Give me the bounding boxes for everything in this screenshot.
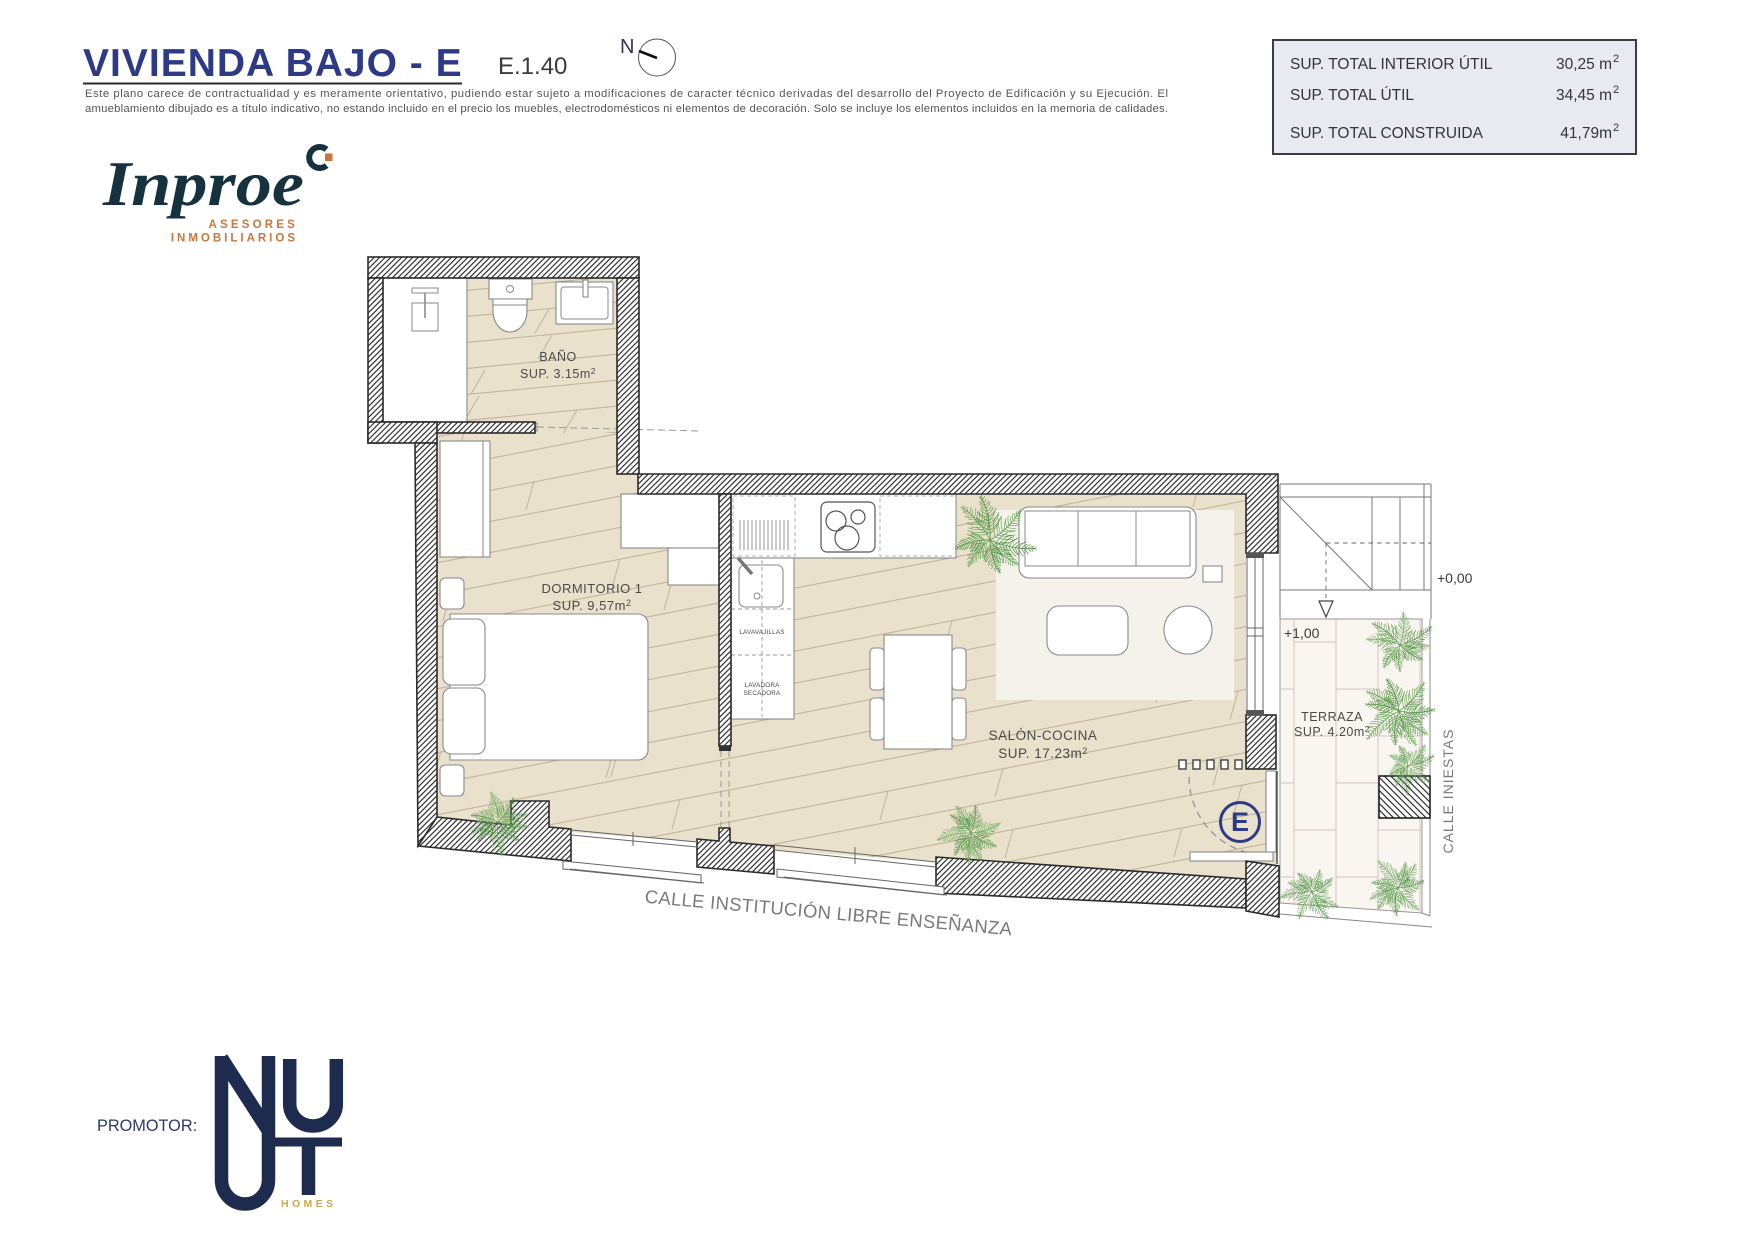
svg-text:+1,00: +1,00 [1284, 625, 1320, 641]
svg-text:30,25 m: 30,25 m [1556, 56, 1612, 73]
svg-text:SALÓN-COCINA: SALÓN-COCINA [989, 728, 1098, 743]
svg-text:SECADORA: SECADORA [744, 690, 782, 697]
svg-text:2: 2 [1613, 53, 1619, 65]
svg-text:SUP. TOTAL CONSTRUIDA: SUP. TOTAL CONSTRUIDA [1290, 125, 1484, 142]
svg-text:INMOBILIARIOS: INMOBILIARIOS [171, 233, 298, 245]
svg-text:2: 2 [1613, 122, 1619, 134]
svg-text:DORMITORIO 1: DORMITORIO 1 [541, 581, 642, 596]
svg-text:E: E [1231, 807, 1249, 837]
svg-text:SUP. 4.20m2: SUP. 4.20m2 [1294, 724, 1370, 739]
svg-text:TERRAZA: TERRAZA [1301, 710, 1363, 724]
svg-text:+0,00: +0,00 [1437, 570, 1473, 586]
svg-text:SUP. TOTAL ÚTIL: SUP. TOTAL ÚTIL [1290, 87, 1414, 104]
svg-text:CALLE INIESTAS: CALLE INIESTAS [1440, 728, 1456, 853]
svg-text:E.1.40: E.1.40 [498, 53, 567, 80]
svg-text:BAÑO: BAÑO [539, 350, 576, 364]
svg-text:HOMES: HOMES [281, 1198, 337, 1210]
svg-text:N: N [620, 36, 634, 58]
svg-text:Este plano carece de contractu: Este plano carece de contractualidad y e… [85, 88, 1168, 100]
svg-text:ASESORES: ASESORES [208, 219, 298, 231]
svg-text:41,79m: 41,79m [1560, 125, 1612, 142]
svg-text:PROMOTOR:: PROMOTOR: [97, 1117, 197, 1135]
svg-text:SUP. 17.23m2: SUP. 17.23m2 [998, 746, 1088, 761]
svg-text:Inproe: Inproe [102, 148, 304, 219]
svg-text:34,45 m: 34,45 m [1556, 87, 1612, 104]
svg-text:amueblamiento dibujado es a tí: amueblamiento dibujado es a título indic… [85, 103, 1168, 115]
svg-text:LAVAVAJILLAS: LAVAVAJILLAS [739, 629, 784, 636]
svg-text:2: 2 [1613, 84, 1619, 96]
svg-text:LAVADORA: LAVADORA [745, 682, 781, 689]
svg-text:VIVIENDA BAJO - E: VIVIENDA BAJO - E [83, 42, 463, 85]
svg-text:SUP. TOTAL INTERIOR ÚTIL: SUP. TOTAL INTERIOR ÚTIL [1290, 56, 1493, 73]
svg-text:SUP. 3.15m2: SUP. 3.15m2 [520, 366, 596, 381]
svg-text:SUP. 9,57m2: SUP. 9,57m2 [553, 598, 632, 613]
